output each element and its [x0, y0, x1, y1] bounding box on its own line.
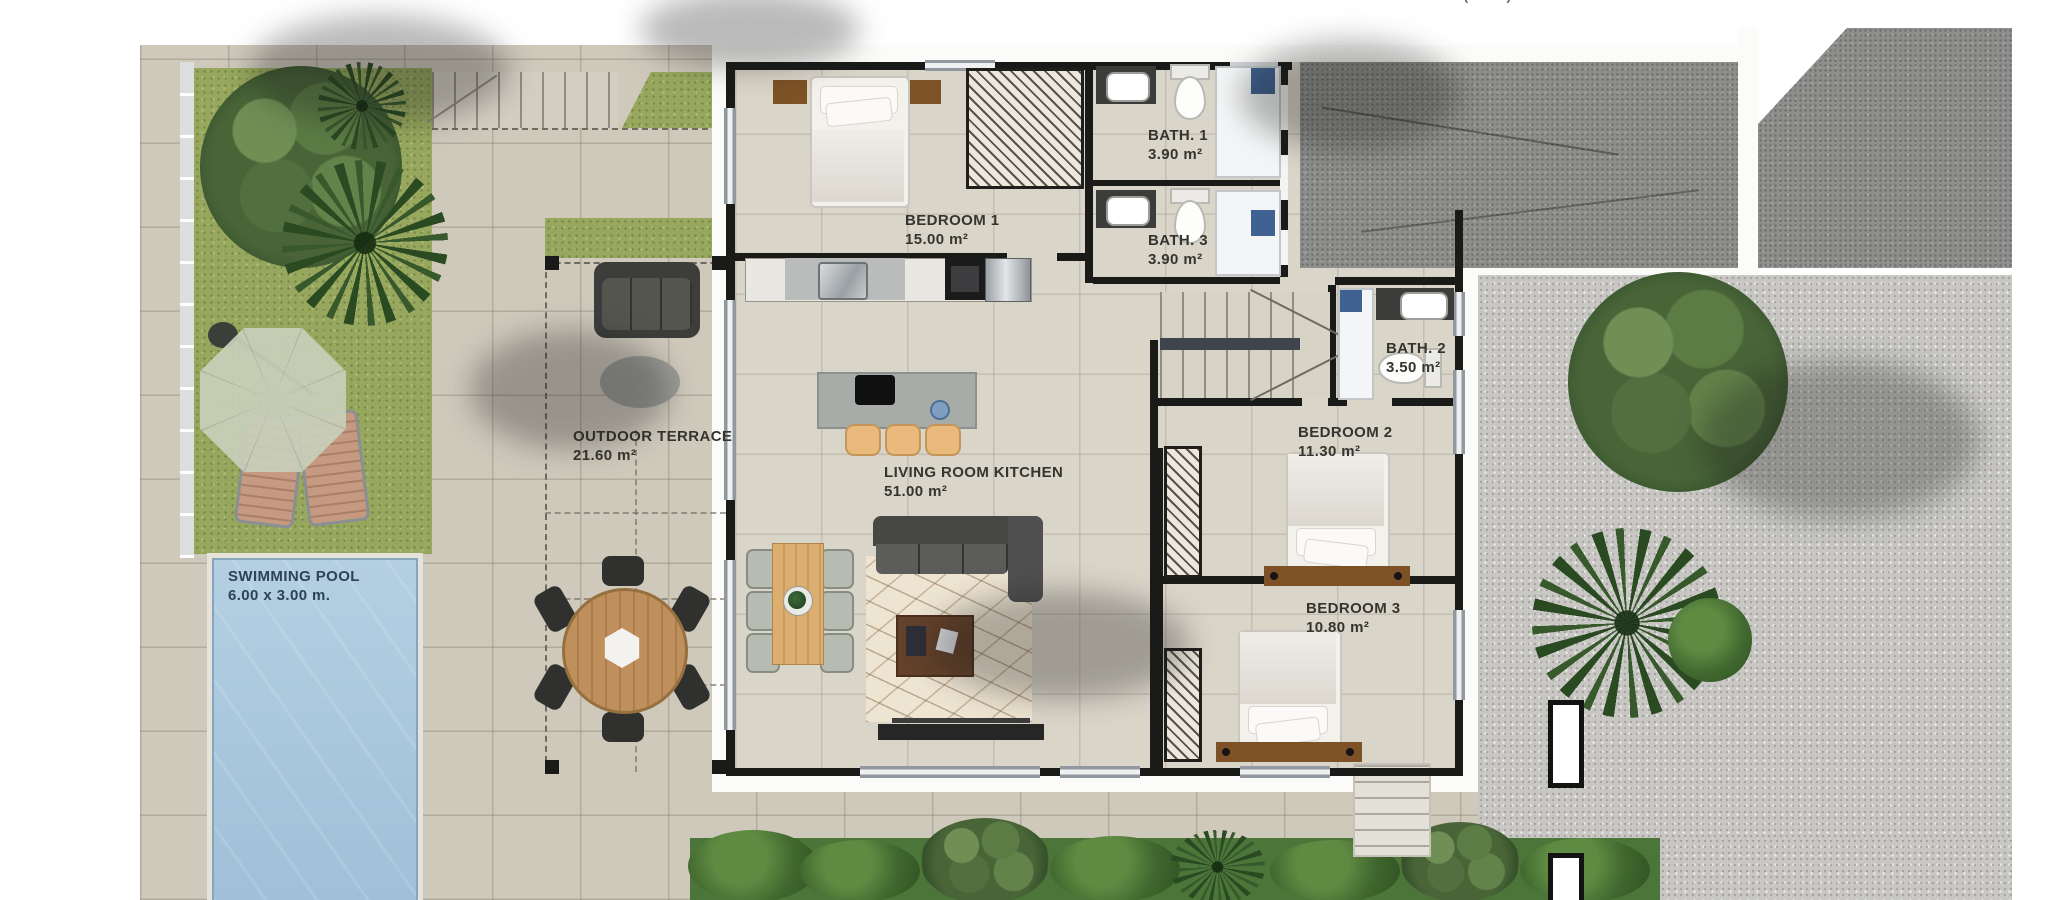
bed3-duvet: [1240, 632, 1336, 704]
room-area: 10.80 m²: [1306, 619, 1400, 638]
driveway-divider: [1738, 28, 1758, 278]
wall-bath1-bath3: [1093, 180, 1280, 186]
shadow-blob-5: [1240, 40, 1460, 150]
room-name: BEDROOM 2: [1298, 424, 1392, 443]
swimming-pool: [212, 558, 418, 900]
window-south-bedroom3: [1240, 766, 1330, 778]
tv-screen: [892, 718, 1030, 723]
dining-chair-r2: [820, 591, 854, 631]
floor-plan-canvas: BEDROOM 1 15.00 m² BATH. 1 3.90 m² BATH.…: [0, 0, 2048, 900]
shadow-blob-3: [470, 330, 670, 450]
bed3-lamp-left: [1222, 748, 1230, 756]
room-name: BATH. 2: [1386, 340, 1446, 359]
window-west-living: [724, 560, 736, 730]
right-margin: [2012, 0, 2048, 900]
bar-stool-3: [925, 424, 961, 456]
wall-baths-west: [1085, 62, 1093, 283]
window-south-living-2: [1060, 766, 1140, 778]
hedge-bush-3: [1050, 836, 1180, 900]
bed2-lamp-left: [1270, 572, 1278, 580]
entry-boundary-dashed: [432, 128, 718, 130]
bath1-basin: [1106, 72, 1150, 102]
room-area: 15.00 m²: [905, 231, 999, 250]
room-label-bath1: BATH. 1 3.90 m²: [1148, 127, 1208, 165]
kitchen-island: [817, 372, 977, 429]
boundary-wall-window-2: [1548, 853, 1584, 900]
room-name: SWIMMING POOL: [228, 568, 360, 587]
kitchen-oven-glass: [951, 266, 979, 292]
room-label-bath3: BATH. 3 3.90 m²: [1148, 232, 1208, 270]
bath3-basin: [1106, 196, 1150, 226]
bed-bedroom2: [1286, 452, 1390, 578]
bath3-shower-head: [1251, 210, 1275, 236]
window-east-bedroom2: [1453, 370, 1465, 454]
bed3-lamp-right: [1346, 748, 1354, 756]
dining-chair-r3: [820, 633, 854, 673]
neighbor-paving: [1758, 28, 2012, 268]
outdoor-sofa-cushions: [602, 278, 692, 330]
room-area: 3.90 m²: [1148, 146, 1208, 165]
bed2-bench: [1264, 566, 1410, 586]
room-name: LIVING ROOM KITCHEN: [884, 464, 1063, 483]
sofa-chaise: [1008, 516, 1043, 602]
dining-chair-r1: [820, 549, 854, 589]
grass-patch-court: [545, 218, 718, 258]
boundary-wall-window-1: [1548, 700, 1584, 788]
room-label-bedroom1: BEDROOM 1 15.00 m²: [905, 212, 999, 250]
hedge-tree-1: [920, 818, 1050, 900]
terrace-column-nw: [545, 256, 559, 270]
hedge-bush-2: [800, 840, 920, 900]
room-area: 11.30 m²: [1298, 443, 1392, 462]
top-table-fragment-room-area: 10.80 m²: [1185, 0, 1245, 3]
terrace-grid-h1: [545, 512, 726, 514]
bed-bedroom1: [810, 76, 910, 208]
window-east-bedroom3: [1453, 610, 1465, 700]
bath2-basin: [1400, 292, 1448, 320]
bath-east-window-3: [1280, 230, 1288, 265]
sofa-seat: [876, 544, 1008, 574]
room-area: 6.00 x 3.00 m.: [228, 587, 360, 606]
window-east-bath2: [1453, 292, 1465, 336]
island-kettle: [930, 400, 950, 420]
terrace-column-sw: [545, 760, 559, 774]
wall-bath2-south-b: [1392, 398, 1462, 406]
hedge-palm: [1170, 830, 1265, 900]
bar-stool-2: [885, 424, 921, 456]
shadow-blob-6: [1700, 360, 1980, 520]
wardrobe-bedroom2: [1164, 446, 1202, 578]
room-name: BATH. 1: [1148, 127, 1208, 146]
staircase-right-landing: [1300, 292, 1330, 398]
bed3-bench: [1216, 742, 1362, 762]
bed2-duvet: [1288, 454, 1384, 526]
gravel-bush: [1668, 598, 1752, 682]
room-area: 3.50 m²: [1386, 359, 1446, 378]
round-chair-n: [602, 556, 644, 586]
bed2-lamp-right: [1394, 572, 1402, 580]
top-table-strip: BEDROOM 3 10.80 m² TERRACE (100%) 21.60 …: [0, 0, 2048, 7]
room-label-bedroom2: BEDROOM 2 11.30 m²: [1298, 424, 1392, 462]
garden-palm-large: [282, 160, 448, 326]
dining-centerpiece-plant: [788, 591, 806, 609]
window-south-living-1: [860, 766, 1040, 778]
wardrobe-bedroom1: [966, 68, 1084, 189]
shadow-blob-4: [930, 590, 1190, 700]
room-label-bedroom3: BEDROOM 3 10.80 m²: [1306, 600, 1400, 638]
room-label-pool: SWIMMING POOL 6.00 x 3.00 m.: [228, 568, 360, 606]
hedge-bush-1: [688, 830, 818, 900]
room-name: BEDROOM 1: [905, 212, 999, 231]
wall-bath2-north: [1335, 277, 1462, 285]
garden-stair: [1353, 763, 1431, 857]
kitchen-sink: [818, 262, 868, 300]
bed1-duvet: [812, 130, 904, 202]
terrace-column-se: [712, 760, 726, 774]
room-area: 51.00 m²: [884, 483, 1063, 502]
room-label-living: LIVING ROOM KITCHEN 51.00 m²: [884, 464, 1063, 502]
staircase-landing-bar: [1160, 338, 1308, 350]
round-chair-s: [602, 712, 644, 742]
bath2-shower-head: [1340, 290, 1362, 312]
coffee-table-magazine-1: [906, 626, 926, 656]
window-west-bedroom1: [724, 108, 736, 204]
kitchen-fridge: [985, 258, 1031, 302]
bath-east-window-2: [1280, 155, 1288, 200]
window-west-kitchen: [724, 300, 736, 500]
wall-bath3-south: [1093, 277, 1280, 284]
gravel-bottom-right: [1660, 838, 2012, 900]
tv-console: [878, 724, 1044, 740]
room-area: 21.60 m²: [573, 447, 732, 466]
room-label-bath2: BATH. 2 3.50 m²: [1386, 340, 1446, 378]
wall-bedroom2-west: [1155, 448, 1163, 578]
top-table-fragment-terrace-area: 21.60 m²: [1600, 0, 1660, 3]
terrace-column-ne: [712, 256, 726, 270]
bath1-toilet-bowl: [1174, 76, 1206, 120]
room-name: BATH. 3: [1148, 232, 1208, 251]
hedge-bush-5: [1520, 838, 1650, 900]
house-outline-north: [724, 45, 1758, 62]
room-name: BEDROOM 3: [1306, 600, 1400, 619]
top-table-fragment-terrace: TERRACE (100%): [1388, 0, 1512, 3]
wall-stairs-south: [1152, 398, 1302, 406]
shadow-blob-1: [250, 15, 510, 125]
nightstand-right: [907, 80, 941, 104]
bar-stool-1: [845, 424, 881, 456]
bed-bedroom3: [1238, 630, 1342, 756]
wall-bedroom1-south-b: [1057, 253, 1093, 261]
island-hob: [855, 375, 895, 405]
top-table-fragment-room: BEDROOM 3: [985, 0, 1074, 3]
nightstand-left: [773, 80, 807, 104]
garden-fence: [180, 62, 194, 558]
room-area: 3.90 m²: [1148, 251, 1208, 270]
